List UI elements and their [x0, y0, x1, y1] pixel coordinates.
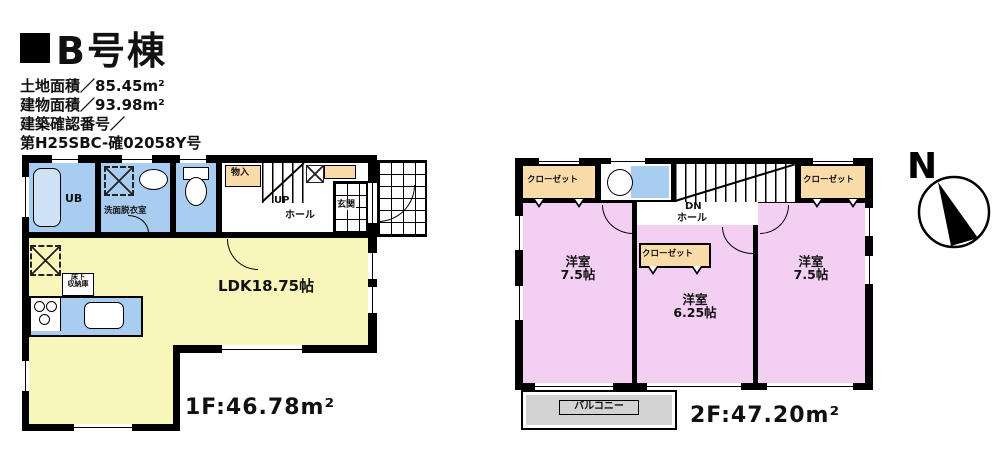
building-area-line: 建物面積／93.98m² [20, 96, 201, 115]
floor2-plan: クローゼット クローゼット DN ホール 洋室 7.5帖 クローゼット 洋室 6… [515, 158, 887, 438]
entrance-label: 玄関 [336, 201, 356, 210]
closet-middle-label: クローゼット [642, 250, 693, 259]
bedroom-right-label: 洋室 7.5帖 [778, 255, 844, 281]
room-hall-1f: 物入 UP ホール 玄関 [222, 163, 368, 232]
window [767, 383, 853, 390]
north-label: N [907, 146, 937, 187]
washing-machine-icon [104, 166, 134, 196]
hall-2f-label: ホール [677, 214, 707, 225]
window [122, 155, 152, 163]
closet-door-mark [811, 199, 823, 208]
staircase-2f [675, 164, 795, 202]
balcony-label: バルコニー [559, 400, 639, 415]
dn-label: DN [685, 202, 702, 213]
window [539, 158, 579, 164]
storage-label: 物入 [231, 169, 249, 178]
toilet-bowl-icon [607, 169, 633, 196]
window [647, 383, 741, 390]
bathtub [33, 168, 61, 227]
window [22, 361, 29, 391]
closet-door-mark [533, 199, 545, 208]
ldk-label: LDK18.75帖 [218, 279, 314, 295]
window [515, 286, 523, 320]
room-ldk-lower [29, 345, 173, 424]
closet-left-label: クローゼット [527, 176, 578, 185]
shoe-cabinet [324, 165, 356, 179]
storage-closet-1f: 物入 [225, 165, 261, 187]
washroom-label: 洗面脱衣室 [104, 207, 147, 216]
toilet-bowl-icon [185, 177, 207, 206]
stove-burner-icon [46, 301, 57, 312]
underfloor-storage-box: 床下 収納庫 [62, 273, 94, 296]
closet-door-mark [847, 199, 859, 208]
room-toilet-2f [601, 164, 671, 200]
closet-right-label: クローゼット [803, 176, 854, 185]
confirmation-label-line: 建築確認番号／ [20, 115, 201, 134]
refrigerator-space-icon [30, 245, 61, 276]
hall-1f-label: ホール [285, 211, 315, 222]
floor1-plan: UB 洗面脱衣室 物入 UP ホール 玄関 LDK18.75帖 床下 収納庫 [22, 155, 447, 435]
window [222, 345, 302, 353]
header-block: B号棟 土地面積／85.45m² 建物面積／93.98m² 建築確認番号／ 第H… [20, 20, 201, 153]
closet-door-mark [573, 199, 585, 208]
closet-right: クローゼット [801, 166, 865, 198]
land-area-line: 土地面積／85.45m² [20, 77, 201, 96]
window [22, 177, 29, 217]
floor2-area-label: 2F:47.20m² [690, 403, 840, 428]
building-title: B号棟 [20, 20, 201, 75]
kitchen-counter [29, 296, 143, 337]
window [865, 208, 873, 236]
bedroom-middle-label: 洋室 6.25帖 [662, 293, 728, 319]
room-hall-2f: DN ホール [637, 202, 758, 225]
window [180, 155, 206, 163]
compass: N [905, 146, 995, 254]
underfloor-storage-label: 床下 収納庫 [63, 274, 93, 289]
closet-middle: クローゼット [639, 243, 711, 268]
stove [31, 298, 61, 331]
window [813, 158, 853, 164]
confirmation-number-line: 第H25SBC-確02058Y号 [20, 134, 201, 153]
compass-icon: N [905, 146, 995, 254]
window [74, 424, 132, 431]
kitchen-sink-icon [84, 302, 124, 329]
room-bedroom-left: 洋室 7.5帖 [523, 203, 632, 383]
stair-diagonal [675, 163, 795, 201]
closet-left: クローゼット [523, 166, 595, 198]
window [368, 287, 377, 313]
closet-door-mark [647, 266, 659, 275]
up-label: UP [274, 196, 289, 207]
room-bathroom: UB [29, 163, 95, 232]
window [368, 253, 377, 279]
room-toilet-1f [176, 163, 216, 232]
washbasin-icon [139, 169, 168, 190]
toilet-floor [631, 166, 669, 198]
window [611, 158, 645, 164]
balcony: バルコニー [521, 390, 677, 430]
front-door-opening [368, 183, 377, 223]
stove-burner-icon [39, 314, 50, 325]
building-title-text: B号棟 [56, 20, 167, 75]
bathroom-label: UB [65, 193, 82, 205]
title-square-icon [20, 33, 50, 63]
entrance-storage-icon [306, 165, 324, 183]
compass-needle [938, 182, 978, 246]
floor1-area-label: 1F:46.78m² [185, 395, 335, 420]
closet-door-mark [691, 266, 703, 275]
window [535, 383, 613, 390]
stove-burner-icon [34, 301, 45, 312]
window [865, 256, 873, 284]
window [52, 155, 78, 163]
window [515, 216, 523, 250]
bedroom-left-label: 洋室 7.5帖 [545, 255, 611, 281]
